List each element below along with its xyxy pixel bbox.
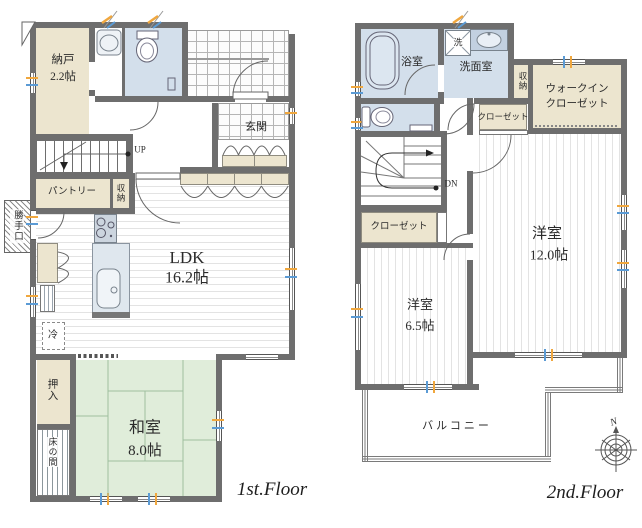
wall (508, 65, 514, 98)
balcony-rail (617, 358, 623, 393)
closet-sub-door (437, 212, 447, 243)
kitchen-tall-cabinet (37, 243, 58, 283)
window-tick-blue (212, 427, 224, 429)
wall (289, 34, 295, 360)
kitchen-counter-base (92, 312, 130, 318)
window (246, 354, 278, 360)
vent-mark-orange (453, 16, 463, 23)
room-label-oshiire: 押入 (45, 379, 60, 402)
room-label-shunou-1f: 収納 (115, 184, 127, 203)
kitchen-counter (92, 243, 130, 313)
stairs-1f (36, 140, 127, 173)
room-label-shunou-2f: 収納 (517, 72, 529, 91)
basin-counter (470, 29, 508, 51)
window-tick-orange (26, 295, 38, 297)
stairs2-dn-label: DN (445, 179, 458, 188)
wall (582, 352, 627, 358)
wall (185, 96, 235, 102)
balcony-rail (545, 387, 623, 393)
wall (30, 22, 188, 28)
wall (122, 28, 125, 96)
room-label-washitsu: 和室 (129, 421, 161, 438)
compass-icon (595, 426, 637, 472)
window (138, 496, 170, 502)
window-tick-blue (351, 127, 363, 129)
room-label-senmen: 洗面室 (460, 62, 493, 74)
wall (355, 23, 514, 29)
room-size-washitsu: 8.0帖 (128, 444, 162, 460)
window (289, 248, 295, 310)
window-tick-blue (285, 276, 297, 278)
room-label-katteguchi: 勝手口 (10, 209, 24, 243)
window-tick-orange (351, 308, 363, 310)
wall (508, 98, 533, 104)
room-label-youshitsu65: 洋室 (407, 298, 433, 312)
window-tick-orange (617, 262, 629, 264)
wall (355, 98, 444, 104)
window-tick-orange (433, 381, 435, 393)
room-bath (361, 29, 438, 98)
wall (355, 384, 404, 390)
window-tick-orange (285, 112, 297, 114)
stairs2-direction-line (376, 153, 436, 188)
room-size-youshitsu12: 12.0帖 (530, 250, 569, 265)
window (30, 73, 36, 93)
wall (434, 104, 440, 131)
wash-basin-1f (97, 30, 121, 55)
window-tick-orange (351, 86, 363, 88)
room-label-pantry: パントリー (48, 188, 96, 198)
room-label-bath: 浴室 (401, 57, 423, 69)
window-tick-orange (570, 56, 572, 68)
room-label-balcony: バルコニー (422, 421, 492, 433)
wall (182, 28, 188, 102)
wall (467, 260, 473, 390)
window-tick-orange (212, 419, 224, 421)
wall (438, 29, 444, 65)
wall (467, 171, 473, 234)
window-tick-orange (26, 77, 38, 79)
floor-plan: 納戸 2.2帖 玄関 UP パントリー 収納 勝手口 LDK 16.2帖 冷 押… (0, 0, 642, 528)
balcony-rail (362, 390, 368, 462)
window (90, 496, 122, 502)
wall (355, 131, 441, 137)
window (289, 108, 295, 124)
window-tick-blue (351, 316, 363, 318)
window-tick-orange (107, 493, 109, 505)
window-tick-orange (351, 121, 363, 123)
youshitsu65-floor (361, 248, 467, 384)
window-tick-blue (617, 212, 629, 214)
window-tick-orange (617, 205, 629, 207)
wash-basin-bowl (100, 35, 118, 51)
stairs2-treads (361, 137, 441, 196)
wall (355, 23, 361, 82)
window-tick-orange (551, 349, 553, 361)
window-tick-blue (544, 349, 546, 361)
wall (355, 243, 473, 248)
shoe-cabinet-divider (254, 155, 255, 167)
room-size-youshitsu65: 6.5帖 (405, 319, 434, 333)
room-label-tokonoma: 床の間 (47, 437, 60, 467)
window-tick-orange (285, 268, 297, 270)
wall (30, 354, 76, 360)
room-size-nando: 2.2帖 (50, 71, 76, 83)
wall (212, 103, 218, 167)
label-washer: 洗 (453, 38, 462, 47)
window (515, 352, 582, 358)
wall (180, 167, 295, 173)
room-label-ldk: LDK (170, 249, 205, 267)
window-tick-blue (563, 56, 565, 68)
kitchen-stove (94, 214, 117, 243)
closet-row-divider (261, 173, 262, 185)
floor1-title: 1st.Floor (237, 479, 307, 501)
room-label-closet-main: クローゼット (477, 113, 528, 122)
room-label-closet-sub: クローゼット (370, 223, 427, 233)
label-refrigerator: 冷 (48, 331, 58, 342)
floor2-title: 2nd.Floor (547, 482, 624, 504)
room-size-ldk: 16.2帖 (165, 271, 209, 288)
toilet1-door-arc (130, 102, 158, 130)
window (553, 59, 585, 65)
wall (30, 496, 222, 502)
room-label-wic-line1: ウォークイン (546, 83, 609, 94)
compass-n-label: N (609, 417, 619, 429)
balcony-rail (362, 456, 551, 462)
window-tick-blue (100, 493, 102, 505)
wall (30, 173, 135, 179)
wall (110, 179, 113, 208)
window-tick-blue (26, 223, 38, 225)
window-tick-blue (426, 381, 428, 393)
room-label-genkan: 玄関 (245, 122, 267, 134)
window-tick-blue (148, 493, 150, 505)
stairs1-up-label: UP (134, 145, 146, 154)
wall (37, 424, 70, 429)
window (404, 384, 452, 390)
wall (95, 96, 188, 102)
room-toilet-2f (361, 104, 434, 131)
window (30, 287, 36, 317)
balcony-rail (545, 393, 551, 456)
wall (30, 208, 135, 214)
porch-step-line (185, 58, 269, 60)
window-tick-blue (351, 92, 363, 94)
window-tick-orange (26, 216, 38, 218)
katteguchi-door (31, 210, 36, 240)
shoe-cabinet-doors (223, 146, 285, 155)
closet-row-divider (207, 173, 208, 185)
closet-main-door (479, 130, 528, 135)
window (216, 411, 222, 441)
stairs2-arrowhead (426, 150, 434, 157)
closet-row-divider (234, 173, 235, 185)
wall (473, 352, 515, 358)
room-wic (533, 65, 621, 128)
nando-door-opening (89, 62, 95, 90)
window-tick-blue (26, 303, 38, 305)
wall (355, 350, 361, 390)
entrance-porch-tiles (185, 30, 289, 97)
wall (528, 128, 627, 134)
stairs2-start-dot (434, 186, 439, 191)
wall (266, 96, 295, 102)
room-label-wic-line2: クローゼット (546, 98, 609, 109)
wall (441, 131, 447, 213)
wall (355, 205, 447, 212)
wall (30, 134, 133, 140)
window-tick-blue (26, 84, 38, 86)
window-tick-blue (617, 269, 629, 271)
room-label-youshitsu12: 洋室 (532, 227, 562, 243)
wall (452, 384, 479, 390)
wall (70, 360, 76, 496)
wall (30, 22, 36, 502)
room-toilet-1f (125, 28, 182, 96)
wall (89, 28, 95, 62)
kitchen-shelf (40, 285, 55, 312)
window-tick-orange (155, 493, 157, 505)
room-label-nando: 納戸 (52, 54, 75, 66)
wall (467, 98, 473, 135)
